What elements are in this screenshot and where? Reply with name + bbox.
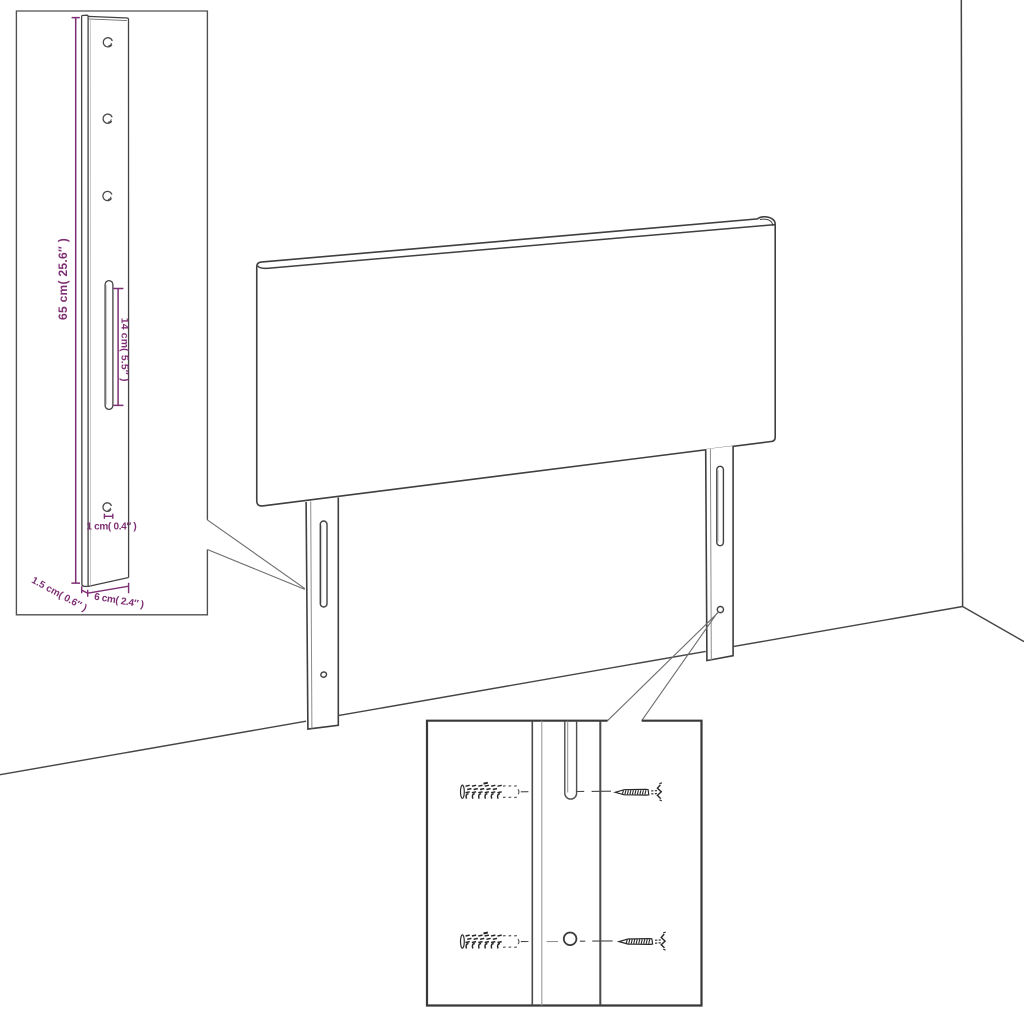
svg-text:1 cm( 0.4″ ): 1 cm( 0.4″ ): [86, 521, 136, 532]
svg-text:14 cm( 5.5″ ): 14 cm( 5.5″ ): [118, 318, 129, 382]
svg-text:65 cm( 25.6″ ): 65 cm( 25.6″ ): [56, 238, 70, 320]
